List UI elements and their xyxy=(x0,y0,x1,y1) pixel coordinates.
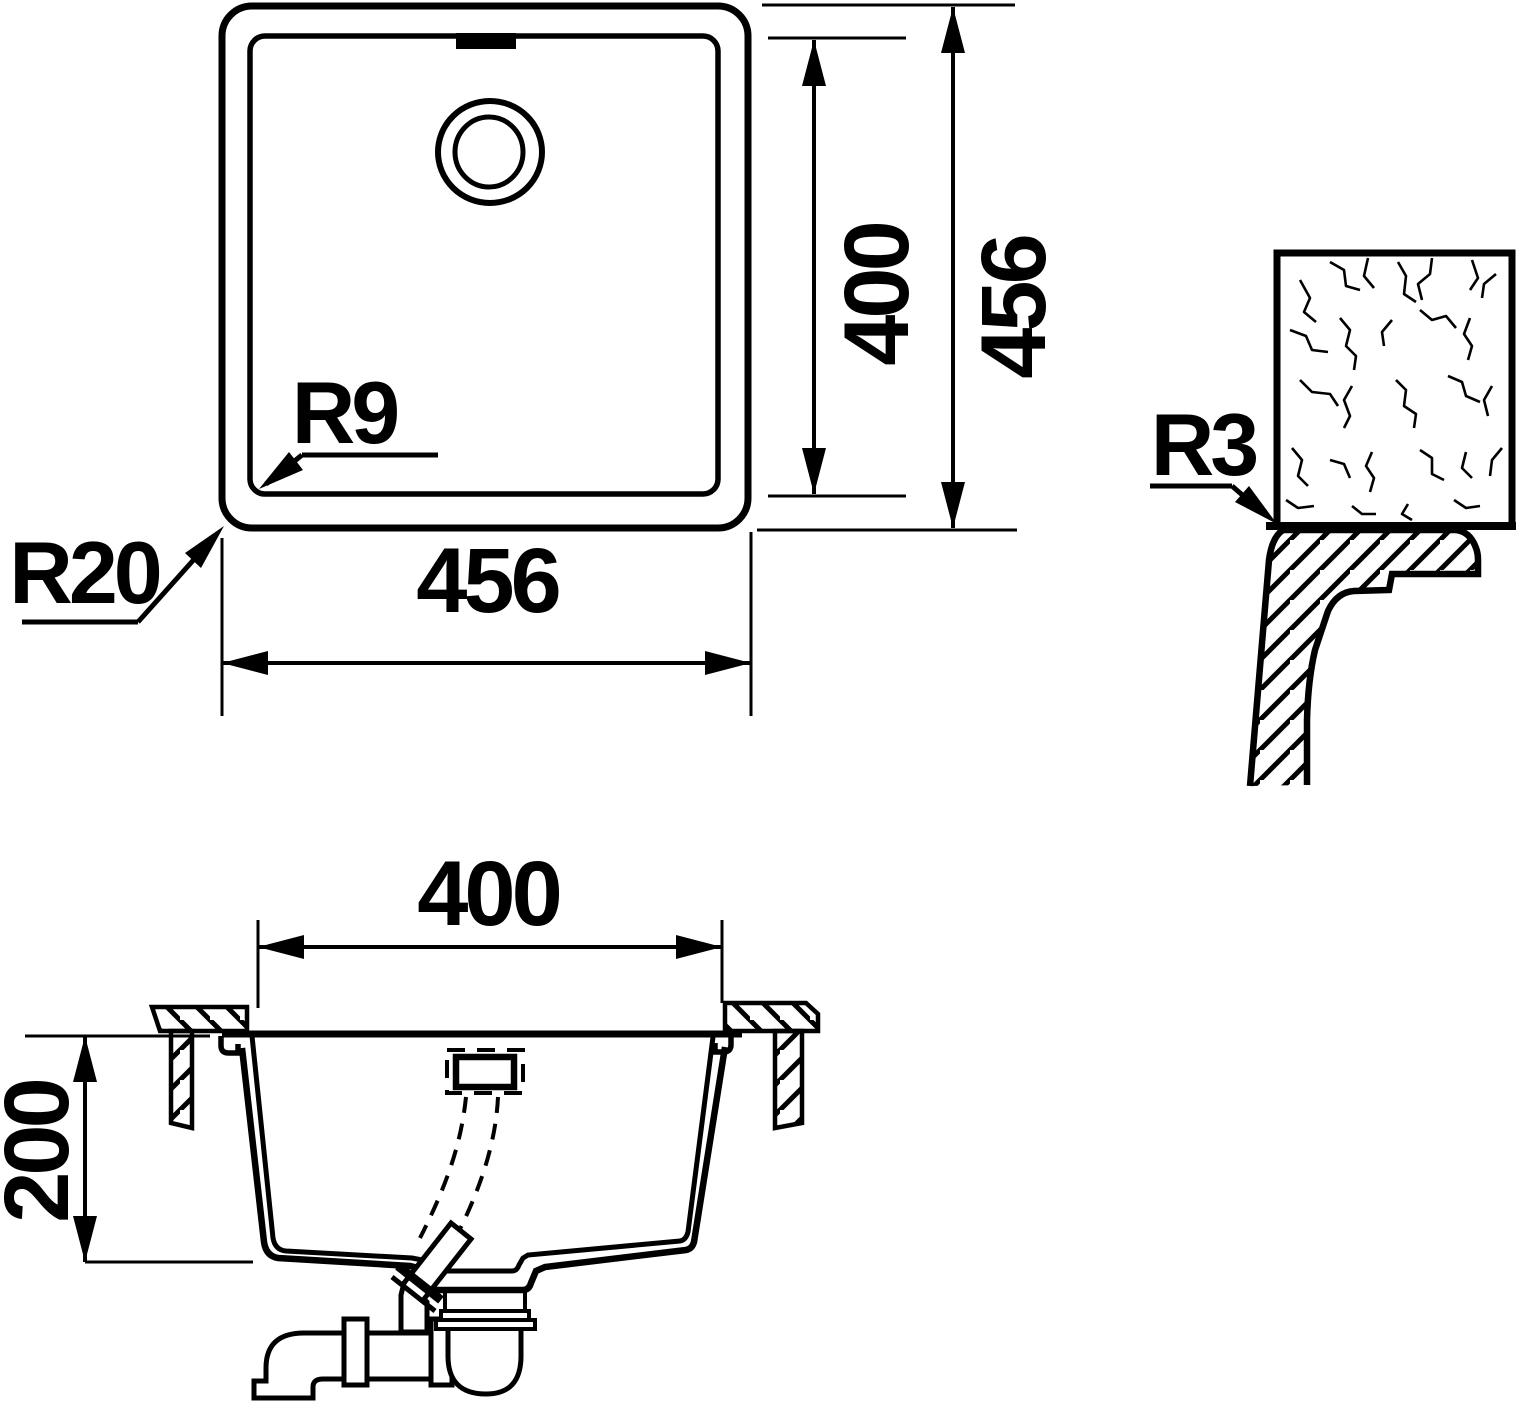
overflow-opening xyxy=(456,1057,514,1087)
sink-technical-drawing: R9 R20 456 400 xyxy=(0,0,1530,1402)
arrowhead xyxy=(705,651,751,675)
plan-inner-height-label: 400 xyxy=(826,223,928,365)
drain-flange-lower xyxy=(436,1320,535,1329)
support-leg-right xyxy=(775,1031,802,1128)
countertop-block xyxy=(1277,253,1512,526)
trap-cup xyxy=(448,1328,521,1394)
technical-drawing-page: R9 R20 456 400 xyxy=(0,0,1530,1402)
arrowhead xyxy=(802,40,826,86)
arrowhead xyxy=(802,448,826,494)
arrowhead xyxy=(222,651,268,675)
dimension-plan-width: 456 xyxy=(222,530,751,716)
edge-detail-view: R3 xyxy=(1150,253,1516,786)
callout-edge-radius: R3 xyxy=(1150,395,1277,524)
countertop-slab-right xyxy=(725,1003,818,1031)
section-view: 400 200 xyxy=(0,843,818,1398)
arrowhead xyxy=(258,935,304,959)
section-depth-label: 200 xyxy=(0,1080,88,1222)
arrowhead xyxy=(73,1036,97,1082)
rim-section-hatch xyxy=(1250,530,1478,786)
plan-outer-height-label: 456 xyxy=(963,236,1065,378)
arrowhead xyxy=(941,7,965,53)
support-leg-left xyxy=(171,1031,192,1128)
edge-radius-label: R3 xyxy=(1151,395,1257,494)
overflow-channel-dashed xyxy=(420,1097,466,1238)
inner-radius-label: R9 xyxy=(292,363,398,462)
outer-radius-label: R20 xyxy=(9,523,159,622)
plan-width-label: 456 xyxy=(416,530,558,632)
countertop-slab-left xyxy=(152,1007,247,1031)
arrowhead xyxy=(676,935,722,959)
callout-outer-radius: R20 xyxy=(9,523,224,622)
section-width-label: 400 xyxy=(417,843,559,945)
dimension-section-width: 400 xyxy=(258,843,722,1008)
dimension-plan-inner-height: 400 xyxy=(768,38,928,496)
dimension-section-depth: 200 xyxy=(0,1036,253,1262)
trap-elbow-pipe xyxy=(254,1333,346,1398)
plan-view: R9 R20 456 400 xyxy=(9,5,1065,716)
arrowhead xyxy=(941,482,965,528)
pipe-fitting-ring xyxy=(344,1319,367,1385)
overflow-mark xyxy=(456,33,516,49)
rim-hook-left xyxy=(221,1036,238,1053)
